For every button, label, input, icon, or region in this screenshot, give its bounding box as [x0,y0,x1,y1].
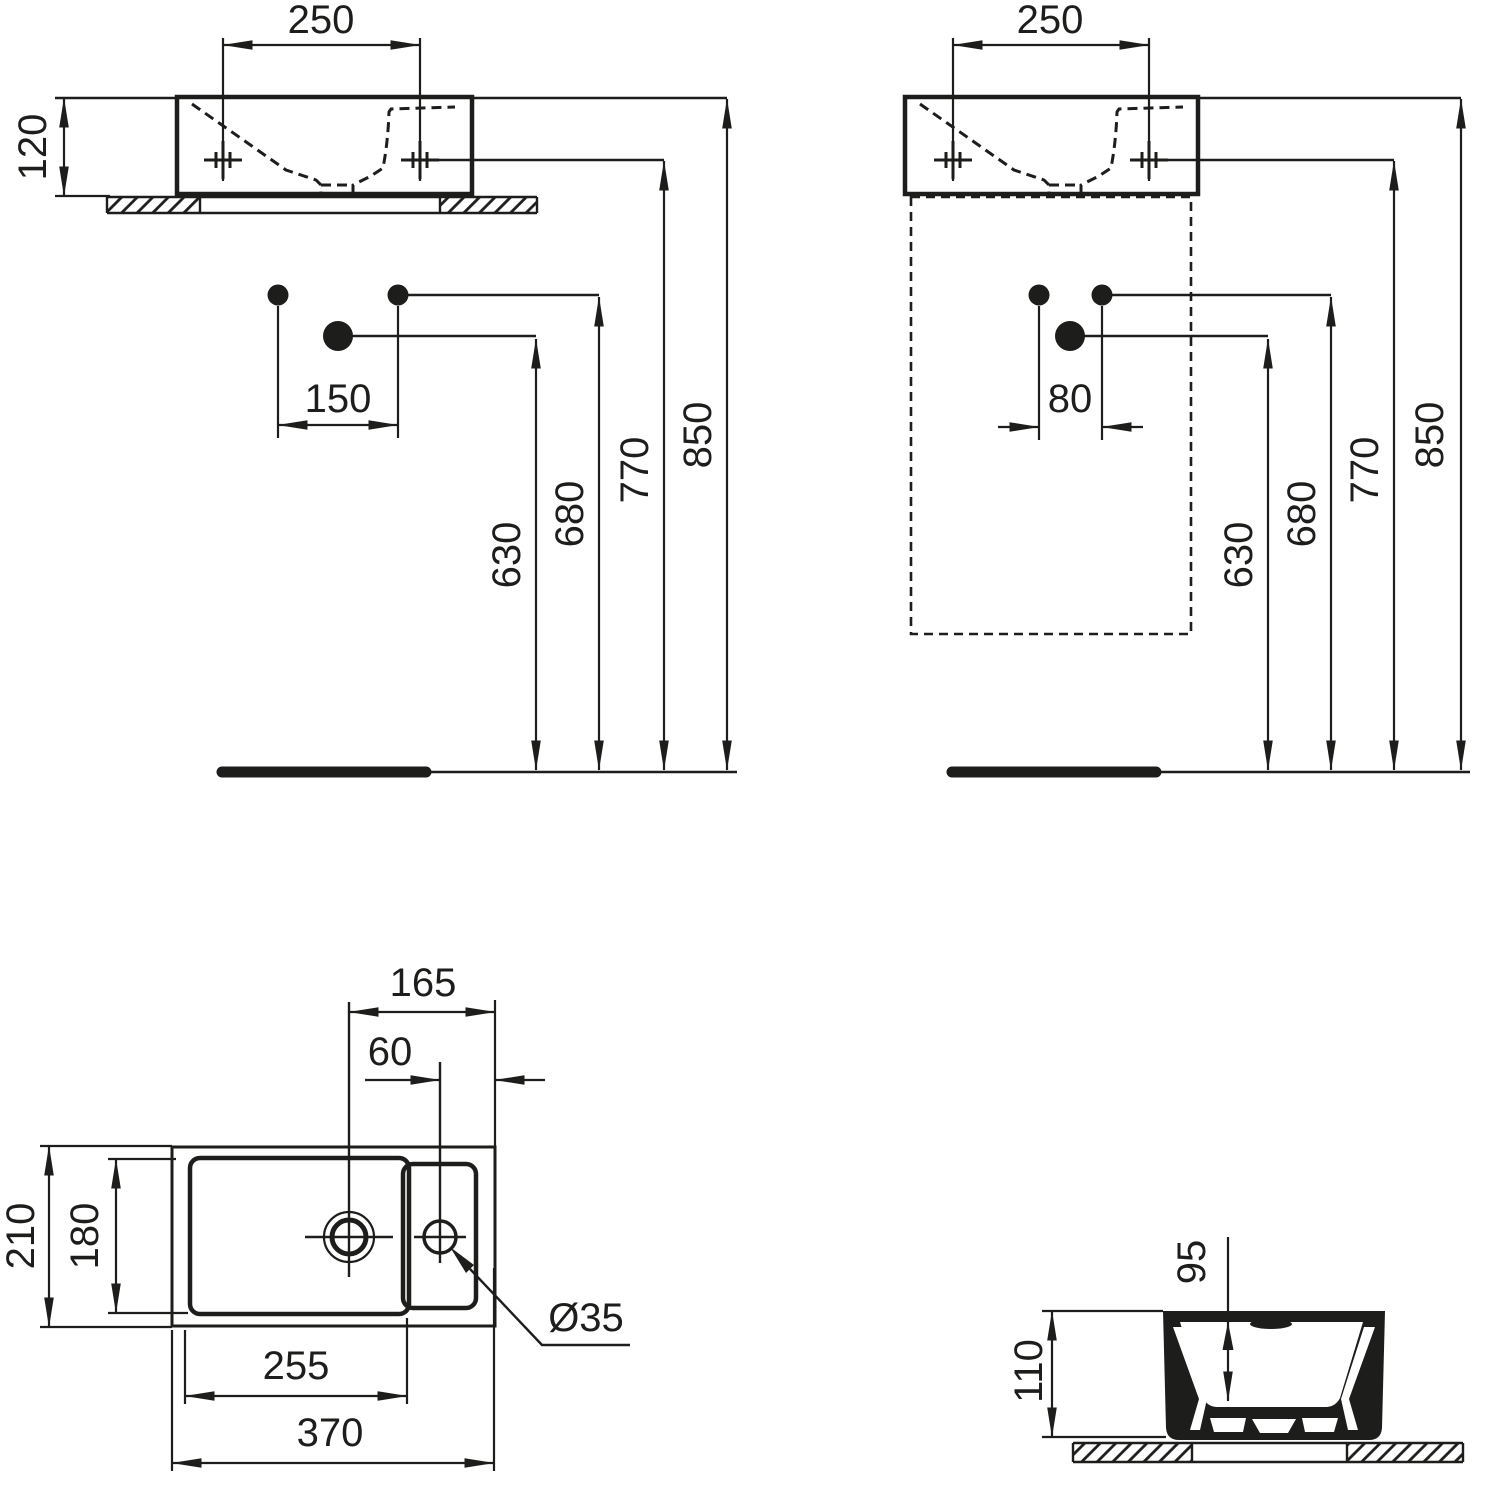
supply-point-right [388,285,409,306]
dim-label-250: 250 [1017,0,1084,42]
wall-hatch-right [440,198,537,212]
plan-view: 165 60 210 180 255 370 Ø35 [0,961,630,1471]
dim-label-110: 110 [1007,1339,1051,1403]
supply-point-right [1092,285,1113,306]
dim-label-630: 630 [485,522,529,589]
shelf-hatch-left [1073,1444,1192,1461]
front-view-with-furniture: 250 80 630 680 770 850 [905,0,1470,772]
dim-label-150: 150 [305,377,372,421]
drain-point [323,321,353,351]
dim-label-250: 250 [288,0,355,42]
dim-label-680: 680 [1280,481,1324,548]
dim-label-210: 210 [0,1203,43,1270]
washbasin-dimension-drawing: 250 120 150 630 680 770 850 [0,0,1500,1500]
side-section-view: 95 110 [1007,1237,1463,1462]
basin-outline [905,97,1198,194]
overflow-slot-icon [1250,1319,1292,1329]
ext-lines-110 [1042,1311,1166,1437]
dim-label-165: 165 [390,961,457,1005]
dim-label-680: 680 [548,481,592,548]
base-recesses [1210,1418,1338,1433]
technical-drawing-page: 250 120 150 630 680 770 850 [0,0,1500,1500]
bowl-cavity [1180,1322,1363,1407]
dim-label-770: 770 [1343,437,1387,504]
dim-label-850: 850 [1408,402,1452,469]
dim-label-120: 120 [11,114,55,181]
supply-point-left [268,285,289,306]
dim-label-370: 370 [297,1411,364,1455]
shelf-hatch-right [1347,1444,1463,1461]
dim-label-80: 80 [1048,377,1093,421]
dim-label-180: 180 [63,1203,107,1270]
wall-hatch-left [107,198,200,212]
dim-label-770: 770 [613,437,657,504]
dim-label-255: 255 [263,1344,330,1388]
supply-point-left [1029,285,1050,306]
front-view-wall-mounted: 250 120 150 630 680 770 850 [11,0,737,772]
dim-label-850: 850 [676,402,720,469]
basin-outline [177,97,472,194]
dim-label-tap-diameter: Ø35 [548,1296,624,1340]
drain-point [1055,321,1085,351]
dim-label-630: 630 [1217,522,1261,589]
dim-label-95: 95 [1170,1240,1214,1285]
dim-label-60: 60 [368,1030,413,1074]
